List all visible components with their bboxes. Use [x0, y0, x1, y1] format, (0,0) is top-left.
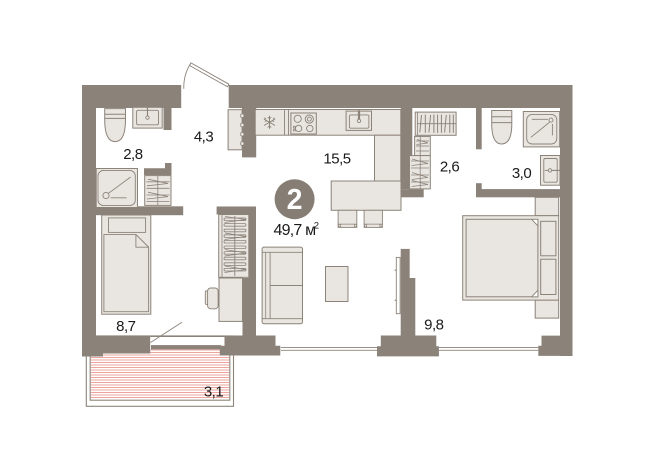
svg-text:3,1: 3,1	[204, 383, 224, 400]
svg-text:15,5: 15,5	[323, 151, 350, 168]
svg-text:2: 2	[287, 184, 303, 216]
svg-text:3,0: 3,0	[512, 165, 532, 182]
svg-text:8,7: 8,7	[116, 318, 136, 335]
svg-text:2,8: 2,8	[123, 146, 143, 163]
svg-text:9,8: 9,8	[424, 317, 444, 334]
svg-text:2: 2	[314, 220, 319, 231]
svg-text:49,7 м: 49,7 м	[274, 222, 316, 239]
svg-text:2,6: 2,6	[440, 159, 460, 176]
svg-text:4,3: 4,3	[194, 129, 214, 146]
